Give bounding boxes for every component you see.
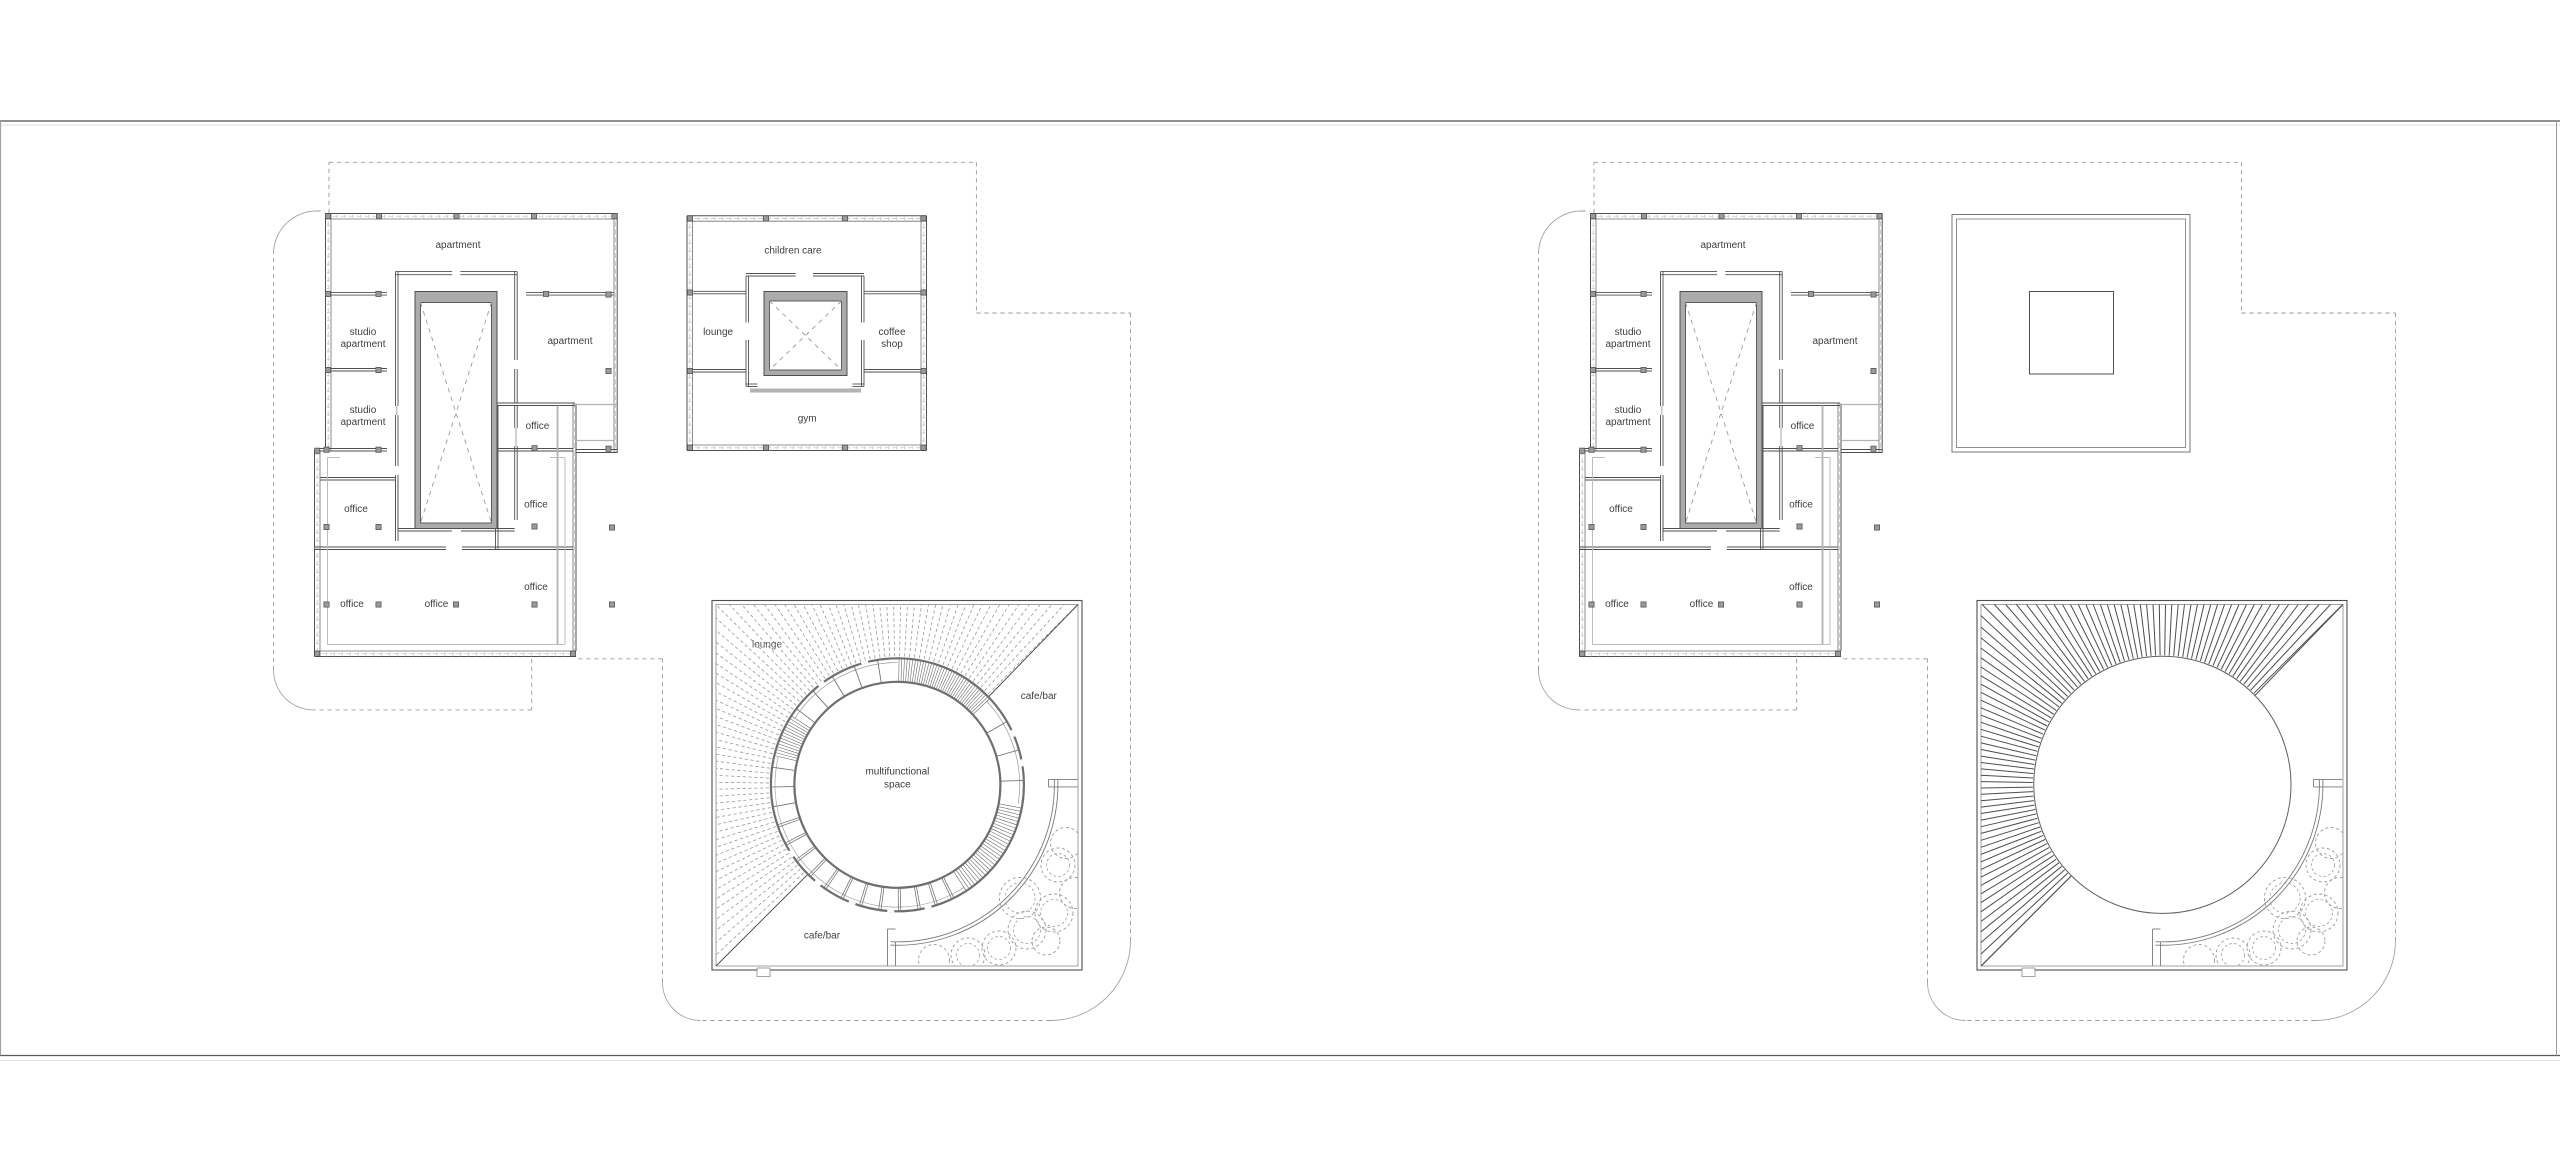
svg-text:office: office bbox=[1789, 582, 1813, 593]
svg-text:office: office bbox=[344, 504, 368, 515]
svg-text:studio: studio bbox=[350, 405, 377, 416]
svg-text:office: office bbox=[1791, 421, 1815, 432]
svg-text:office: office bbox=[1690, 599, 1714, 610]
svg-text:lounge: lounge bbox=[752, 640, 782, 651]
svg-text:studio: studio bbox=[1615, 327, 1642, 338]
svg-text:apartment: apartment bbox=[1812, 336, 1857, 347]
svg-text:office: office bbox=[1609, 504, 1633, 515]
svg-text:apartment: apartment bbox=[340, 417, 385, 428]
svg-text:apartment: apartment bbox=[340, 339, 385, 350]
svg-text:apartment: apartment bbox=[1700, 240, 1745, 251]
svg-text:office: office bbox=[526, 421, 550, 432]
svg-text:space: space bbox=[884, 780, 911, 791]
svg-text:studio: studio bbox=[350, 327, 377, 338]
svg-text:studio: studio bbox=[1615, 405, 1642, 416]
svg-text:apartment: apartment bbox=[1605, 339, 1650, 350]
svg-text:lounge: lounge bbox=[703, 327, 733, 338]
svg-text:office: office bbox=[425, 599, 449, 610]
svg-text:multifunctional: multifunctional bbox=[865, 767, 929, 778]
svg-text:gym: gym bbox=[798, 414, 817, 425]
svg-text:apartment: apartment bbox=[1605, 417, 1650, 428]
svg-text:cafe/bar: cafe/bar bbox=[804, 930, 841, 941]
svg-text:office: office bbox=[1789, 500, 1813, 511]
svg-text:coffee: coffee bbox=[878, 327, 905, 338]
svg-text:office: office bbox=[524, 500, 548, 511]
svg-text:office: office bbox=[1605, 599, 1629, 610]
svg-text:children care: children care bbox=[764, 246, 822, 257]
svg-text:office: office bbox=[524, 582, 548, 593]
svg-text:apartment: apartment bbox=[547, 336, 592, 347]
svg-text:apartment: apartment bbox=[435, 240, 480, 251]
svg-text:office: office bbox=[340, 599, 364, 610]
svg-text:cafe/bar: cafe/bar bbox=[1021, 691, 1058, 702]
svg-text:shop: shop bbox=[881, 339, 903, 350]
